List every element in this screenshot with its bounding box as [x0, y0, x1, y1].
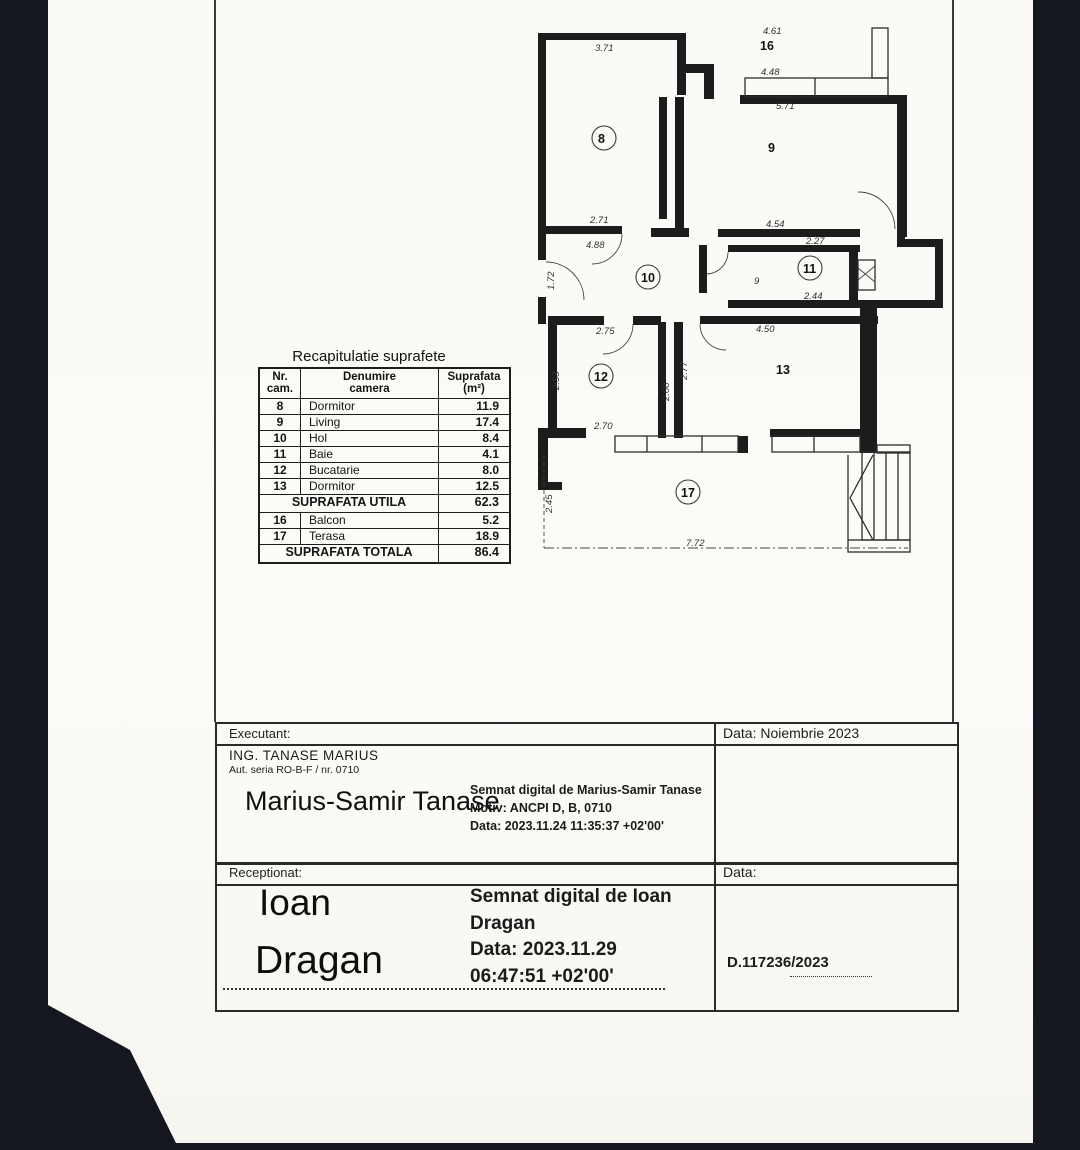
staircase	[848, 445, 910, 552]
cell-nr: 9	[259, 414, 301, 430]
hdr-nr-2: cam.	[267, 383, 293, 395]
digital-1-line-1: Semnat digital de Marius-Samir Tanase	[470, 781, 702, 799]
cell-name: Dormitor	[301, 398, 439, 414]
receptionat-label: Receptionat:	[229, 865, 302, 880]
cell-area: 17.4	[439, 414, 511, 430]
table-row: 11 Baie 4.1	[259, 446, 510, 462]
cell-name: Dormitor	[301, 478, 439, 494]
engineer-name: ING. TANASE MARIUS	[229, 748, 379, 763]
receiver-signature-last: Dragan	[255, 939, 383, 983]
data-noiembrie-label: Data: Noiembrie 2023	[723, 725, 859, 741]
cell-area: 12.5	[439, 478, 511, 494]
row-divider-1	[217, 744, 957, 746]
totala-label: SUPRAFATA TOTALA	[259, 544, 439, 563]
cell-name: Hol	[301, 430, 439, 446]
sheet-frame-left	[214, 0, 216, 722]
scanned-document: 8 9 10 11 12 13 16 17 3.71 2.71 4.88 1.7…	[0, 0, 1080, 1150]
cell-nr: 17	[259, 528, 301, 544]
dim-3-71: 3.71	[595, 43, 614, 54]
dim-2-08: 2.08	[661, 382, 672, 402]
suprafata-utila-row: SUPRAFATA UTILA 62.3	[259, 494, 510, 512]
executant-label: Executant:	[229, 726, 290, 741]
dim-2-44: 2.44	[803, 291, 823, 302]
table-row: 8 Dormitor 11.9	[259, 398, 510, 414]
cell-area: 11.9	[439, 398, 511, 414]
floor-plan-drawing: 8 9 10 11 12 13 16 17 3.71 2.71 4.88 1.7…	[530, 15, 960, 560]
dim-2-77: 2.77	[679, 361, 690, 381]
dim-4-50: 4.50	[756, 324, 775, 335]
dim-2-27: 2.27	[805, 236, 825, 247]
digital-2-line-2: Dragan	[470, 911, 672, 938]
cell-name: Living	[301, 414, 439, 430]
hdr-nr-1: Nr.	[272, 371, 287, 383]
registration-number: D.117236/2023	[727, 954, 829, 971]
digital-2-line-3: Data: 2023.11.29	[470, 937, 672, 964]
cell-nr: 12	[259, 462, 301, 478]
row-divider-2	[217, 862, 957, 865]
recap-header-name: Denumire camera	[301, 368, 439, 398]
cell-name: Terasa	[301, 528, 439, 544]
data2-label: Data:	[723, 864, 756, 880]
dim-7-72: 7.72	[686, 538, 705, 549]
dim-4-48: 4.48	[761, 67, 780, 78]
digital-2-line-1: Semnat digital de Ioan	[470, 884, 672, 911]
registration-dotted-underline	[790, 976, 872, 977]
dim-2-45: 2.45	[544, 494, 555, 514]
hdr-name-1: Denumire	[343, 371, 396, 383]
executant-signature: Marius-Samir Tanase	[245, 786, 500, 817]
room-label-9: 9	[768, 141, 775, 155]
cell-area: 4.1	[439, 446, 511, 462]
cell-area: 8.4	[439, 430, 511, 446]
digital-1-line-2: Motiv: ANCPI D, B, 0710	[470, 799, 702, 817]
hdr-area-1: Suprafata	[447, 371, 500, 383]
dim-4-88: 4.88	[586, 240, 605, 251]
room-label-13: 13	[776, 363, 790, 377]
table-row: 13 Dormitor 12.5	[259, 478, 510, 494]
window-band	[615, 436, 860, 452]
utila-label: SUPRAFATA UTILA	[259, 494, 439, 512]
dim-4-54: 4.54	[766, 219, 785, 230]
dim-0-9: 9	[754, 276, 760, 287]
dim-4-61: 4.61	[763, 26, 782, 37]
table-row: 17 Terasa 18.9	[259, 528, 510, 544]
dim-2-53: 2.53	[551, 371, 562, 391]
table-row: 10 Hol 8.4	[259, 430, 510, 446]
digital-signature-1: Semnat digital de Marius-Samir Tanase Mo…	[470, 781, 702, 835]
dim-2-75: 2.75	[595, 326, 615, 337]
dim-2-70: 2.70	[593, 421, 613, 432]
cell-nr: 16	[259, 512, 301, 528]
cell-nr: 13	[259, 478, 301, 494]
digital-2-line-4: 06:47:51 +02'00'	[470, 964, 672, 991]
recap-header-row: Nr. cam. Denumire camera Suprafata (m²)	[259, 368, 510, 398]
recap-header-nr: Nr. cam.	[259, 368, 301, 398]
room-label-10: 10	[641, 271, 655, 285]
cell-name: Balcon	[301, 512, 439, 528]
shaft	[858, 260, 875, 290]
cell-name: Baie	[301, 446, 439, 462]
table-row: 16 Balcon 5.2	[259, 512, 510, 528]
recap-header-area: Suprafata (m²)	[439, 368, 511, 398]
room-label-8: 8	[598, 132, 605, 146]
hdr-area-2: (m²)	[463, 383, 485, 395]
cell-nr: 8	[259, 398, 301, 414]
room-label-11: 11	[803, 262, 816, 276]
cell-name: Bucatarie	[301, 462, 439, 478]
dim-1-72: 1.72	[546, 271, 557, 290]
signature-dotted-line	[223, 988, 665, 990]
room-label-16: 16	[760, 39, 774, 53]
table-row: 12 Bucatarie 8.0	[259, 462, 510, 478]
table-row: 9 Living 17.4	[259, 414, 510, 430]
signature-table: Executant: Data: Noiembrie 2023 ING. TAN…	[215, 722, 959, 1012]
room-label-12: 12	[594, 370, 608, 384]
room-number-rings	[589, 126, 822, 504]
digital-1-line-3: Data: 2023.11.24 11:35:37 +02'00'	[470, 817, 702, 835]
utila-value: 62.3	[439, 494, 511, 512]
cell-area: 5.2	[439, 512, 511, 528]
recap-table: Nr. cam. Denumire camera Suprafata (m²) …	[258, 367, 511, 564]
suprafata-totala-row: SUPRAFATA TOTALA 86.4	[259, 544, 510, 563]
dim-2-71: 2.71	[589, 215, 609, 226]
totala-value: 86.4	[439, 544, 511, 563]
signature-table-divider	[714, 724, 716, 1010]
room-label-17: 17	[681, 486, 695, 500]
receiver-signature-first: Ioan	[259, 882, 331, 924]
cell-nr: 11	[259, 446, 301, 462]
terrace-boundary	[544, 455, 908, 548]
cell-area: 8.0	[439, 462, 511, 478]
cell-area: 18.9	[439, 528, 511, 544]
cell-nr: 10	[259, 430, 301, 446]
hdr-name-2: camera	[349, 383, 389, 395]
recap-table-title: Recapitulatie suprafete	[258, 348, 480, 365]
digital-signature-2: Semnat digital de Ioan Dragan Data: 2023…	[470, 884, 672, 990]
engineer-authorization: Aut. seria RO-B-F / nr. 0710	[229, 764, 359, 776]
dim-5-71: 5.71	[776, 101, 795, 112]
